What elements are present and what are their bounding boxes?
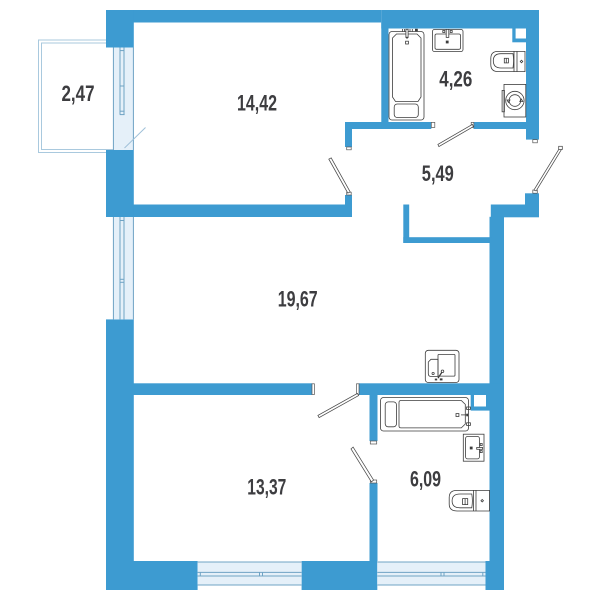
svg-text:5,49: 5,49	[422, 161, 454, 186]
svg-text:2,47: 2,47	[62, 81, 95, 106]
svg-text:19,67: 19,67	[278, 287, 318, 312]
svg-text:6,09: 6,09	[410, 467, 441, 492]
svg-text:14,42: 14,42	[237, 91, 277, 116]
svg-text:13,37: 13,37	[247, 475, 286, 500]
svg-text:4,26: 4,26	[439, 67, 472, 92]
